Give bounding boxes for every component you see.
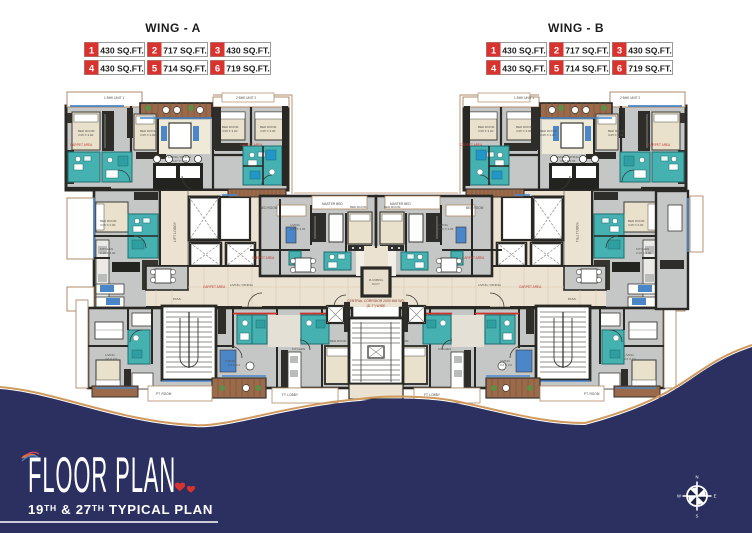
svg-text:BED ROOM: BED ROOM: [466, 206, 484, 210]
svg-text:CARPET AREA: CARPET AREA: [519, 285, 542, 289]
svg-text:430 SQ.FT.: 430 SQ.FT.: [100, 64, 143, 74]
svg-text:LIFT LOBBY: LIFT LOBBY: [173, 221, 177, 242]
svg-text:5: 5: [152, 64, 158, 75]
svg-text:E: E: [714, 494, 717, 499]
svg-text:3.05 X 3.00: 3.05 X 3.00: [478, 129, 494, 133]
svg-text:3.05 X 3.00: 3.05 X 3.00: [608, 133, 624, 137]
svg-text:4.27 X 3.05: 4.27 X 3.05: [560, 159, 576, 163]
svg-text:BED ROOM: BED ROOM: [384, 205, 401, 209]
svg-text:PASS.: PASS.: [568, 297, 577, 301]
svg-text:PT. ROOM: PT. ROOM: [156, 392, 172, 396]
svg-text:(6'-7") WIDE: (6'-7") WIDE: [367, 304, 387, 308]
svg-text:CARPET AREA: CARPET AREA: [460, 143, 483, 147]
svg-text:BED ROOM: BED ROOM: [260, 206, 278, 210]
svg-text:430 SQ.FT.: 430 SQ.FT.: [100, 46, 143, 56]
svg-text:3.6 X 3.0: 3.6 X 3.0: [624, 357, 636, 361]
svg-text:3: 3: [215, 46, 220, 57]
svg-text:4.27 X 3.05: 4.27 X 3.05: [172, 159, 188, 163]
svg-text:3.05 X 3.00: 3.05 X 3.00: [100, 223, 116, 227]
svg-text:3.05 X 3.00: 3.05 X 3.00: [140, 133, 156, 137]
svg-text:KITCHEN: KITCHEN: [292, 347, 305, 351]
svg-text:CARPET AREA: CARPET AREA: [240, 143, 263, 147]
svg-text:3.05 X 3.00: 3.05 X 3.00: [222, 129, 238, 133]
svg-text:1 BHK UNIT 1: 1 BHK UNIT 1: [104, 96, 124, 100]
svg-text:LIVING / DINING: LIVING / DINING: [478, 283, 502, 287]
svg-text:DUCT: DUCT: [372, 282, 380, 286]
svg-text:3.05 X 3.00: 3.05 X 3.00: [540, 133, 556, 137]
svg-text:FT. LOBBY: FT. LOBBY: [424, 393, 441, 397]
svg-text:714 SQ.FT.: 714 SQ.FT.: [163, 64, 206, 74]
svg-text:3.05 X 3.00: 3.05 X 3.00: [260, 129, 276, 133]
svg-text:3.05 X 3.00: 3.05 X 3.00: [78, 133, 94, 137]
svg-text:2: 2: [152, 46, 157, 57]
svg-text:MASTER BED: MASTER BED: [322, 202, 343, 206]
svg-text:2 BHK UNIT 2: 2 BHK UNIT 2: [236, 96, 256, 100]
svg-text:3.66 X 3.05: 3.66 X 3.05: [438, 227, 454, 231]
svg-text:CARPET AREA: CARPET AREA: [648, 143, 671, 147]
svg-text:CARPET AREA: CARPET AREA: [70, 143, 93, 147]
svg-text:2.16 X 3.00: 2.16 X 3.00: [100, 251, 116, 255]
svg-text:3.6 X 3.0: 3.6 X 3.0: [228, 363, 240, 367]
svg-text:WING - B: WING - B: [548, 21, 604, 35]
svg-text:3.05 X 3.00: 3.05 X 3.00: [516, 129, 532, 133]
svg-text:1: 1: [89, 46, 95, 57]
svg-text:3.66 X 3.05: 3.66 X 3.05: [290, 227, 306, 231]
svg-text:CARPET AREA: CARPET AREA: [203, 285, 226, 289]
svg-text:BED ROOM: BED ROOM: [350, 205, 367, 209]
svg-text:CARPET AREA: CARPET AREA: [462, 256, 485, 260]
svg-text:3.6 X 3.0: 3.6 X 3.0: [105, 357, 117, 361]
svg-text:W: W: [677, 494, 681, 499]
svg-text:LIVING / DINING: LIVING / DINING: [230, 283, 254, 287]
svg-text:6: 6: [215, 64, 220, 75]
svg-text:3.6 X 3.0: 3.6 X 3.0: [500, 363, 512, 367]
svg-text:PT. ROOM: PT. ROOM: [584, 392, 600, 396]
svg-text:4: 4: [89, 64, 95, 75]
svg-text:430 SQ.FT.: 430 SQ.FT.: [226, 46, 269, 56]
svg-text:PASS.: PASS.: [173, 297, 182, 301]
svg-text:FLOOR PLAN: FLOOR PLAN: [28, 448, 176, 504]
svg-text:S: S: [696, 514, 699, 519]
svg-text:KITCHEN: KITCHEN: [438, 347, 451, 351]
svg-text:1 BHK UNIT 1: 1 BHK UNIT 1: [514, 96, 534, 100]
svg-text:717 SQ.FT.: 717 SQ.FT.: [163, 46, 206, 56]
svg-text:N: N: [695, 475, 698, 480]
svg-text:CENTRAL CORRIDOR 2000 MM WD.: CENTRAL CORRIDOR 2000 MM WD.: [347, 299, 405, 303]
svg-text:719 SQ.FT.: 719 SQ.FT.: [226, 64, 269, 74]
svg-text:CARPET AREA: CARPET AREA: [252, 256, 275, 260]
svg-text:WING - A: WING - A: [145, 21, 201, 35]
svg-text:BED ROOM: BED ROOM: [330, 339, 347, 343]
svg-text:FT. LOBBY: FT. LOBBY: [282, 393, 299, 397]
svg-text:2 BHK UNIT 2: 2 BHK UNIT 2: [620, 96, 640, 100]
svg-text:3.05 X 3.00: 3.05 X 3.00: [628, 223, 644, 227]
svg-text:2.16 X 3.00: 2.16 X 3.00: [636, 251, 652, 255]
